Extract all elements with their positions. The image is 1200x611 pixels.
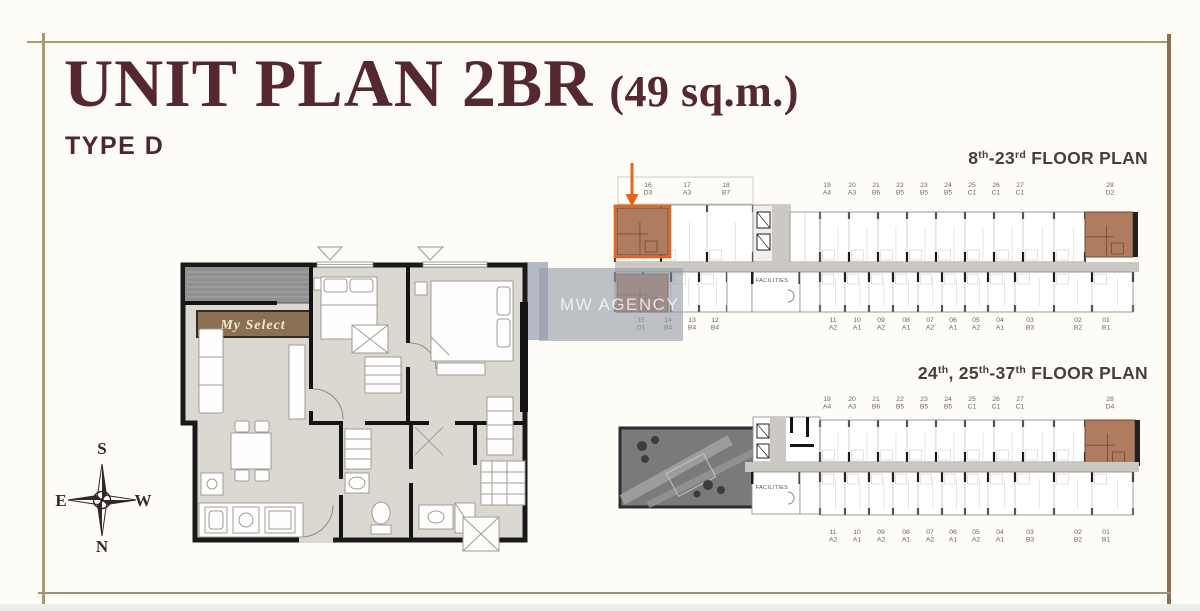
brochure-page: UNIT PLAN 2BR (49 sq.m.) TYPE D 8th-23rd… (0, 0, 1200, 611)
frame-left-line (42, 33, 45, 611)
unit-label-01: 01B1 (1102, 529, 1111, 544)
unit-label-26: 26C1 (992, 396, 1001, 411)
unit-label-10: 10A1 (853, 317, 862, 332)
unit-label-21: 21B6 (872, 396, 881, 411)
unit-label-24: 24B5 (944, 182, 953, 197)
page-bottom-edge (0, 604, 1200, 611)
unit-28-d4 (1085, 420, 1135, 466)
title-superscript: th (1016, 364, 1027, 376)
closet-shelves (487, 397, 513, 455)
unit-label-23: 23B5 (920, 182, 929, 197)
unit-label-27: 27C1 (1016, 396, 1025, 411)
unit-label-06: 06A1 (949, 529, 958, 544)
floor-plan-8-23: FACILITIES16D317A318B719A420A321B622B523… (612, 160, 1178, 338)
compass-e: E (55, 491, 66, 510)
balcony (185, 267, 311, 305)
unit-label-18: 18B7 (722, 182, 731, 197)
unit-label-02: 02B2 (1074, 529, 1083, 544)
unit-label-22: 22B5 (896, 396, 905, 411)
bed-bench (437, 363, 485, 375)
toilet (372, 502, 390, 524)
unit-label-25: 25C1 (968, 182, 977, 197)
unit-label-08: 08A1 (902, 529, 911, 544)
corridor (615, 262, 1139, 272)
my-select-text: My Select (219, 318, 285, 333)
sofa (199, 329, 223, 413)
unit-label-20: 20A3 (848, 396, 857, 411)
floor-plan-2-title: 24th, 25th-37th FLOOR PLAN (748, 363, 1148, 384)
unit-label-04: 04A1 (996, 317, 1005, 332)
facilities-label: FACILITIES (756, 278, 788, 284)
unit-label-19: 19A4 (823, 182, 832, 197)
watermark: MW AGENCY (539, 268, 683, 341)
frame-bottom-line (38, 592, 1171, 594)
frame-top-line (27, 41, 1170, 43)
title-area: (49 sq.m.) (609, 66, 799, 117)
tv-console (289, 345, 305, 419)
unit-label-08: 08A1 (902, 317, 911, 332)
compass-rose: S N E W (52, 438, 152, 556)
unit-label-05: 05A2 (972, 529, 981, 544)
unit-label-22: 22B5 (896, 182, 905, 197)
unit-label-27: 27C1 (1016, 182, 1025, 197)
unit-label-12: 12B4 (711, 317, 720, 332)
unit-label-10: 10A1 (853, 529, 862, 544)
title-text: FLOOR PLAN (1026, 363, 1148, 383)
unit-label-07: 07A2 (926, 317, 935, 332)
facilities-label: FACILITIES (756, 485, 788, 491)
unit-label-21: 21B6 (872, 182, 881, 197)
title-superscript: th (979, 364, 990, 376)
unit-label-06: 06A1 (949, 317, 958, 332)
unit-label-26: 26C1 (992, 182, 1001, 197)
unit-label-17: 17A3 (683, 182, 692, 197)
compass-w: W (135, 491, 152, 510)
unit-label-07: 07A2 (926, 529, 935, 544)
unit-16-d3 (617, 208, 668, 255)
nightstand (314, 278, 321, 290)
unit-label-03: 03B3 (1026, 529, 1035, 544)
roof-garden (620, 428, 760, 507)
dining-table (231, 433, 271, 469)
title-text: 24 (918, 363, 938, 383)
compass-s: S (97, 439, 106, 458)
floor-plan-24-37: FACILITIES19A420A321B622B523B524B525C126… (612, 388, 1178, 553)
corridor (745, 462, 1139, 472)
unit-label-25: 25C1 (968, 396, 977, 411)
unit-label-09: 09A2 (877, 317, 886, 332)
unit-label-09: 09A2 (877, 529, 886, 544)
page-title: UNIT PLAN 2BR (49 sq.m.) (64, 44, 799, 123)
nightstand-2 (415, 282, 427, 295)
unit-label-16: 16D3 (644, 182, 653, 197)
unit-floor-plan: My Select (175, 245, 555, 560)
unit-label-28: 28D4 (1106, 396, 1115, 411)
unit-label-24: 24B5 (944, 396, 953, 411)
unit-label-01: 01B1 (1102, 317, 1111, 332)
unit-label-20: 20A3 (848, 182, 857, 197)
watermark-text: MW AGENCY (539, 268, 683, 315)
compass-n: N (96, 537, 109, 556)
unit-label-28: 28D2 (1106, 182, 1115, 197)
unit-label-04: 04A1 (996, 529, 1005, 544)
unit-label-03: 03B3 (1026, 317, 1035, 332)
title-text: , 25 (948, 363, 978, 383)
title-text: -37 (989, 363, 1015, 383)
unit-label-11: 11A2 (829, 529, 838, 544)
unit-label-02: 02B2 (1074, 317, 1083, 332)
unit-label-11: 11A2 (829, 317, 838, 332)
unit-label-05: 05A2 (972, 317, 981, 332)
unit-28-d2 (1085, 212, 1133, 257)
title-superscript: th (938, 364, 949, 376)
unit-label-23: 23B5 (920, 396, 929, 411)
unit-label-19: 19A4 (823, 396, 832, 411)
unit-label-13: 13B4 (688, 317, 697, 332)
type-label: TYPE D (65, 132, 164, 161)
title-main: UNIT PLAN 2BR (64, 44, 593, 123)
ac-ledge-icon (318, 247, 443, 260)
